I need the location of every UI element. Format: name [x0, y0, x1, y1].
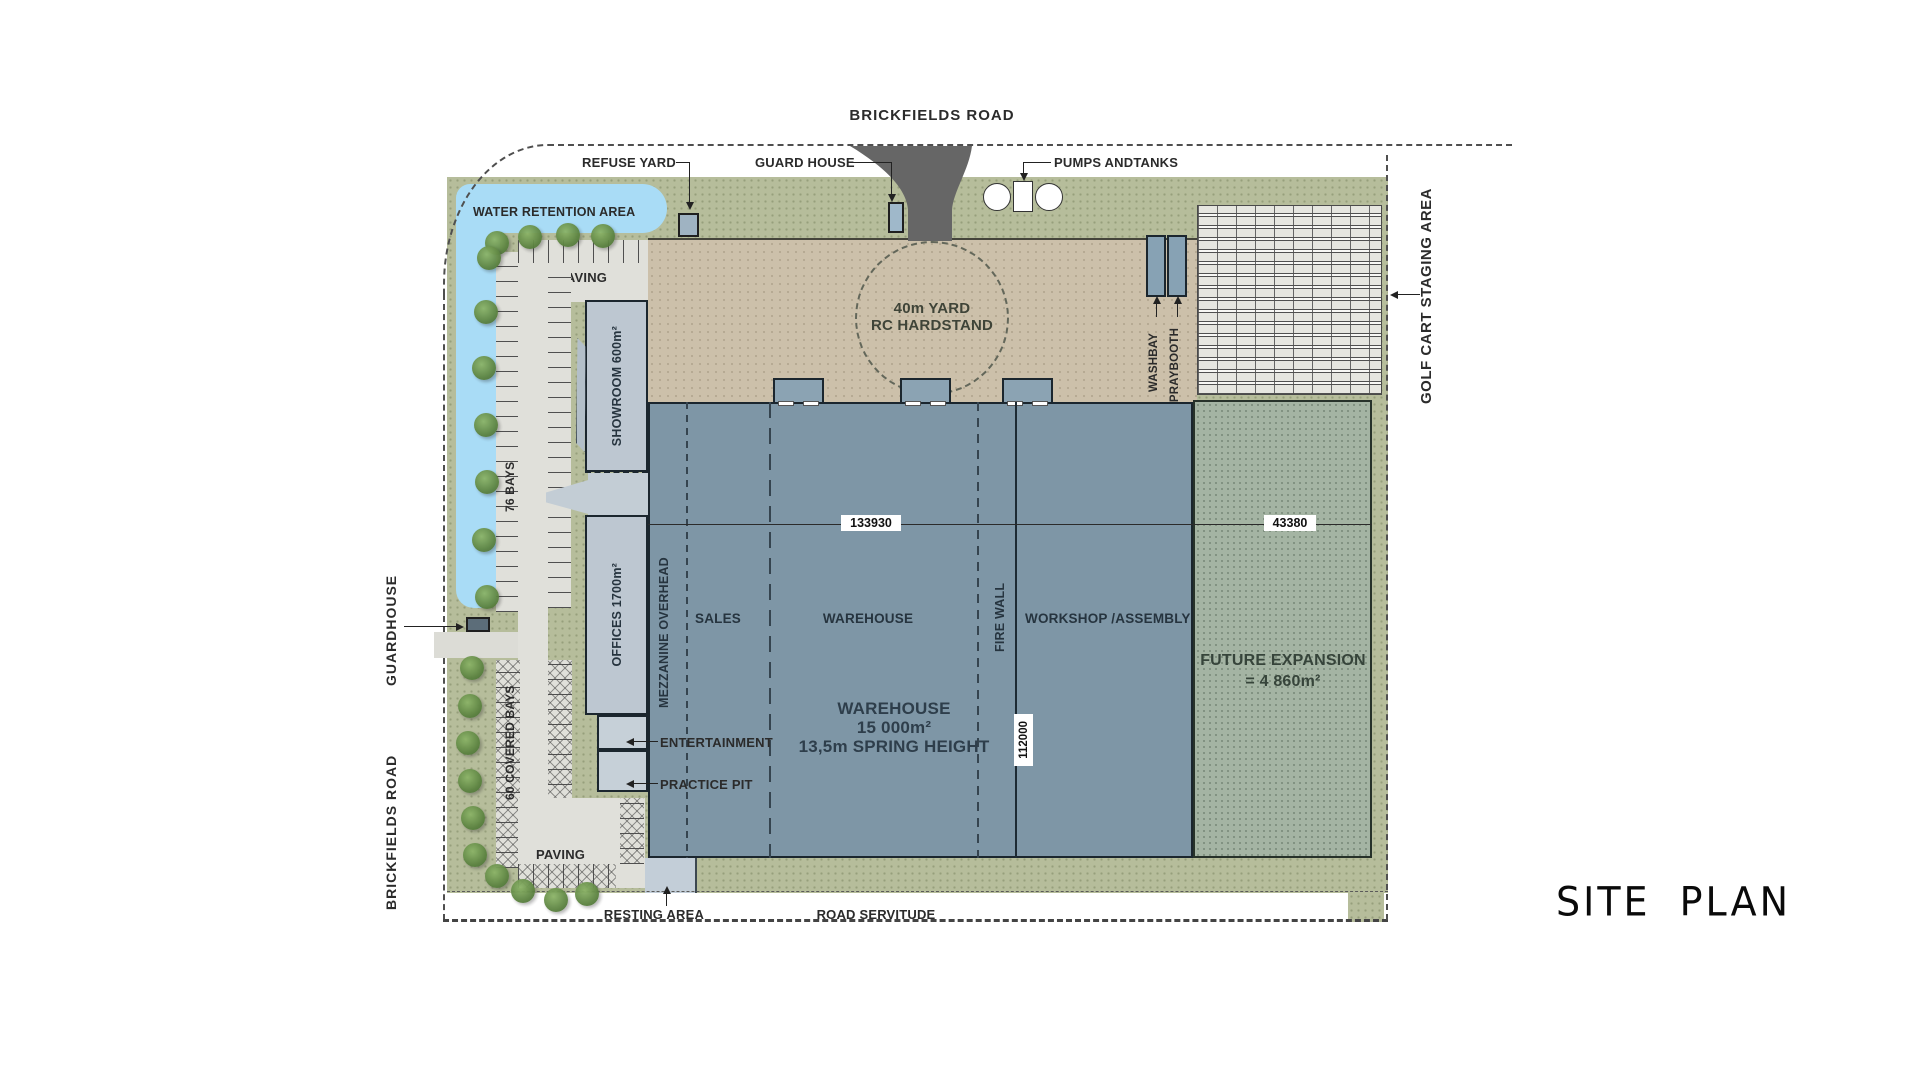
resting-area-label: RESTING AREA: [598, 908, 710, 923]
fuel-tank-circle-1: [983, 183, 1011, 211]
sheet-title: SITE PLAN: [1556, 879, 1791, 925]
brickfields-road-top-label: BRICKFIELDS ROAD: [832, 108, 1032, 125]
yard-40m-circle: 40m YARD RC HARDSTAND: [855, 241, 1009, 395]
covered-bays-label: 60 COVERED BAYS: [504, 686, 517, 800]
resting-area-box: [645, 858, 697, 893]
covered-bays-bottom-right: [620, 798, 644, 864]
washbay-box: [1146, 235, 1166, 297]
refuse-yard-label: REFUSE YARD: [582, 156, 676, 171]
golf-arrow-head: [1390, 291, 1398, 299]
road-servitude-label: ROAD SERVITUDE: [808, 908, 944, 923]
refuse-yard-box: [678, 213, 699, 237]
loading-door-2: [900, 378, 951, 404]
tree-icon: [575, 882, 599, 906]
guard-arrow-head: [888, 194, 896, 202]
spraybooth-arrow-head: [1174, 296, 1182, 304]
sales-label: SALES: [690, 611, 746, 626]
guard-house-box: [888, 202, 904, 233]
parking-bays-right: [548, 266, 571, 608]
tree-icon: [474, 413, 498, 437]
future-expansion-line2: = 4 860m²: [1198, 671, 1368, 693]
golf-arrow-line: [1397, 294, 1420, 295]
practice-pit-room: [597, 750, 648, 792]
entrance-road: [845, 144, 977, 242]
practice-pit-label: PRACTICE PIT: [660, 778, 753, 793]
entertainment-label: ENTERTAINMENT: [660, 736, 773, 751]
brickfields-road-west-label: BRICKFIELDS ROAD: [384, 758, 400, 910]
paving-bottom-label: PAVING: [536, 848, 585, 863]
entertainment-room: [597, 715, 648, 750]
resting-arrow-head: [663, 886, 671, 894]
boundary-left-upper: [443, 294, 445, 632]
tree-icon: [472, 356, 496, 380]
site-plan-canvas: WATER RETENTION AREA PAVING 76 BAYS 60 C…: [0, 0, 1920, 1080]
showroom-dashed-edge: [585, 471, 648, 473]
tree-icon: [456, 731, 480, 755]
guardhouse-west-label: GUARDHOUSE: [384, 570, 400, 686]
tree-icon: [460, 656, 484, 680]
firewall-division-line: [977, 402, 979, 858]
showroom-forecourt: [588, 473, 648, 515]
mezzanine-label: MEZZANINE OVERHEAD: [657, 550, 671, 708]
tree-icon: [485, 864, 509, 888]
pumps-arrow-head: [1020, 173, 1028, 181]
boundary-left-lower: [443, 658, 445, 920]
dimension-depth-text: 112000: [1018, 721, 1030, 759]
guardhouse-west-box: [466, 617, 490, 632]
tree-icon: [461, 806, 485, 830]
boundary-top: [558, 144, 1512, 146]
practice-pit-arrow-head: [626, 780, 634, 788]
loading-door-1: [773, 378, 824, 404]
spraybooth-arrow-line: [1177, 302, 1178, 317]
tree-icon: [475, 585, 499, 609]
tree-icon: [591, 224, 615, 248]
resting-arrow-line: [666, 892, 667, 906]
guard-leader-v: [891, 162, 892, 194]
site-green-sliver: [1348, 893, 1384, 922]
warehouse-title-line3: 13,5m SPRING HEIGHT: [794, 736, 994, 758]
yard-label-line2: RC HARDSTAND: [871, 318, 993, 335]
offices-building: OFFICES 1700m²: [585, 515, 648, 715]
parking-bays-left: [496, 252, 518, 612]
fire-wall-label: FIRE WALL: [993, 586, 1007, 652]
dimension-main-width: 133930: [841, 515, 901, 531]
showroom-ramp: [576, 338, 586, 452]
tree-icon: [477, 246, 501, 270]
washbay-arrow-head: [1153, 296, 1161, 304]
washbay-arrow-line: [1156, 302, 1157, 317]
offices-label: OFFICES 1700m²: [610, 563, 624, 667]
spraybooth-box: [1167, 235, 1187, 297]
tree-icon: [544, 888, 568, 912]
entertainment-arrow-line: [634, 741, 658, 742]
guard-leader-h: [850, 162, 892, 163]
workshop-label: WORKSHOP /ASSEMBLY: [1025, 611, 1185, 626]
refuse-leader-h: [676, 162, 690, 163]
guard-house-label: GUARD HOUSE: [755, 156, 855, 171]
spraybooth-label: SPRAYBOOTH: [1169, 320, 1182, 410]
tree-icon: [463, 843, 487, 867]
yard-label-line1: 40m YARD: [894, 301, 971, 318]
tree-icon: [518, 225, 542, 249]
dimension-depth: 112000: [1014, 714, 1033, 766]
future-expansion-line1: FUTURE EXPANSION: [1198, 650, 1368, 672]
boundary-right: [1386, 155, 1388, 920]
tree-icon: [474, 300, 498, 324]
fire-wall-line: [1015, 402, 1017, 858]
tree-icon: [556, 223, 580, 247]
refuse-leader-v: [689, 162, 690, 202]
guardhouse-west-arrow-head: [456, 623, 464, 631]
pumps-tanks-label: PUMPS ANDTANKS: [1054, 156, 1178, 171]
practice-pit-arrow-line: [634, 783, 658, 784]
loading-door-3: [1002, 378, 1053, 404]
sales-division-line: [769, 402, 771, 858]
tree-icon: [472, 528, 496, 552]
pump-square: [1013, 181, 1033, 212]
tree-icon: [475, 470, 499, 494]
tree-icon: [458, 694, 482, 718]
dimension-expansion-width: 43380: [1264, 515, 1316, 531]
entertainment-arrow-head: [626, 738, 634, 746]
washbay-label: WASHBAY: [1148, 320, 1161, 392]
future-expansion-area: [1193, 400, 1372, 858]
golf-cart-staging-label: GOLF CART STAGING AREA: [1419, 150, 1436, 404]
showroom-building: SHOWROOM 600m²: [585, 300, 648, 472]
showroom-label: SHOWROOM 600m²: [610, 326, 624, 446]
fuel-tank-circle-2: [1035, 183, 1063, 211]
pumps-leader-h: [1023, 162, 1051, 163]
tree-icon: [511, 879, 535, 903]
tree-icon: [458, 769, 482, 793]
parking-76-bays-label: 76 BAYS: [504, 452, 517, 512]
parking-aisle: [518, 240, 548, 866]
guardhouse-access-road: [434, 632, 518, 658]
guardhouse-west-arrow-line: [404, 626, 456, 627]
refuse-arrow-head: [686, 202, 694, 210]
golf-cart-staging-grid: [1197, 205, 1382, 395]
boundary-corner-arc: [443, 144, 561, 296]
warehouse-zone-label: WAREHOUSE: [818, 611, 918, 626]
